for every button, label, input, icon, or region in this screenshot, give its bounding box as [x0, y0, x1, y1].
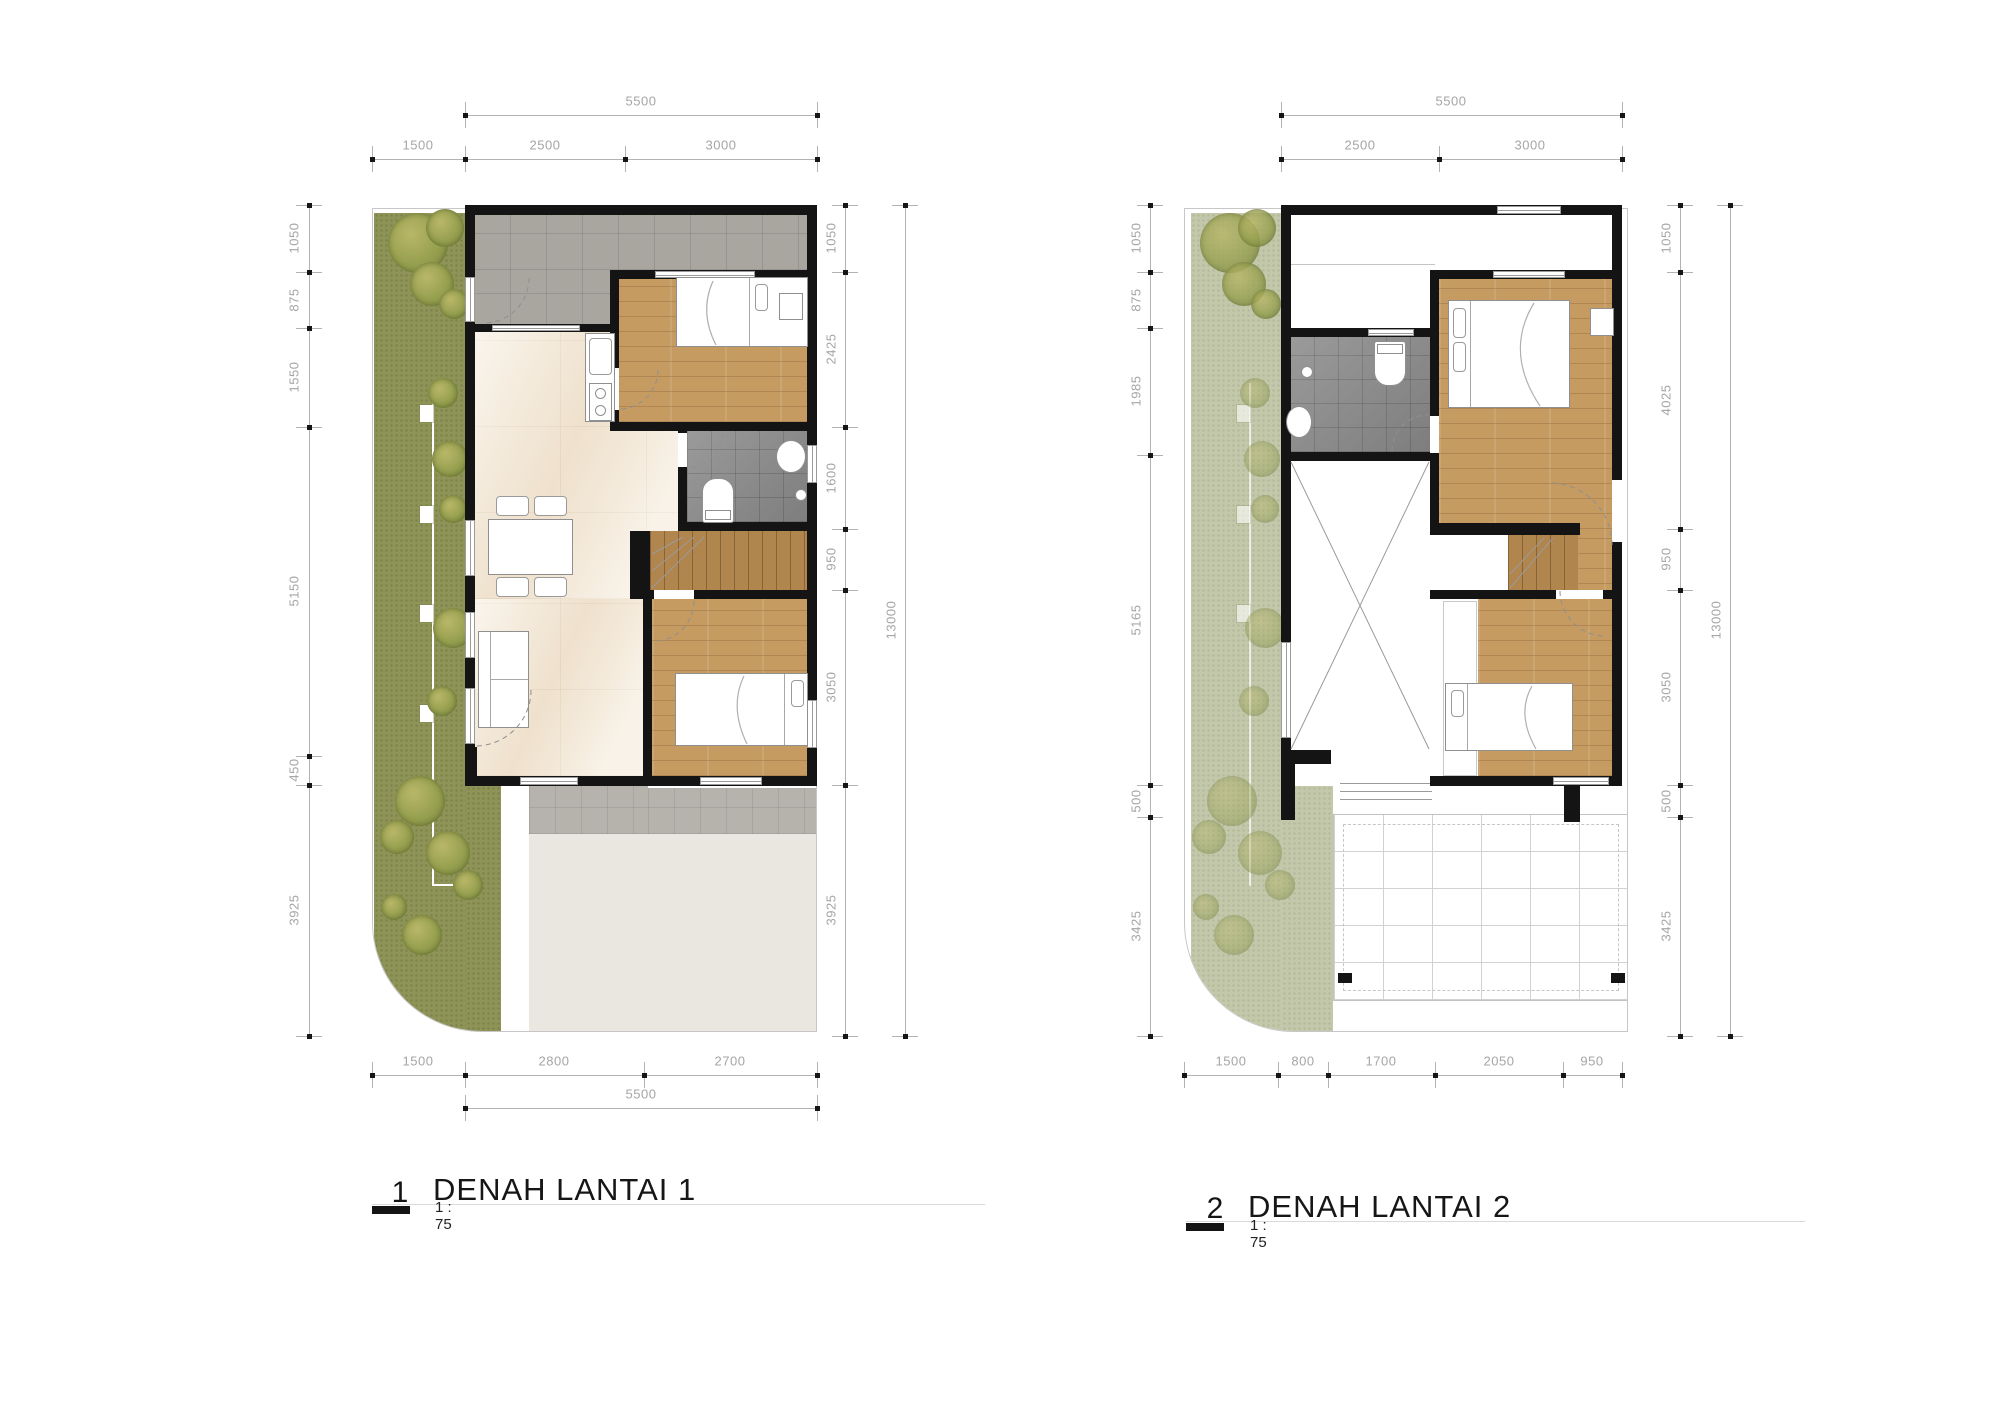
title-bar [372, 1206, 410, 1214]
dim-tick [1137, 1036, 1163, 1037]
dim-line [845, 205, 846, 1036]
dim-label: 500 [1659, 789, 1674, 812]
door-swing-arc [687, 433, 722, 468]
dim-line [1730, 205, 1731, 1036]
dim-tick [832, 529, 858, 530]
dim-label: 1500 [403, 1054, 434, 1069]
dim-tick [644, 1062, 645, 1088]
dim-tick [892, 205, 918, 206]
dim-label: 1985 [1129, 376, 1144, 407]
door-swing-arc [654, 601, 694, 641]
dim-tick [296, 427, 322, 428]
dim-label: 1050 [287, 223, 302, 254]
dim-label: 5500 [626, 1087, 657, 1102]
dim-label: 1050 [1129, 223, 1144, 254]
dim-tick [1667, 529, 1693, 530]
dim-label: 1050 [824, 223, 839, 254]
dim-tick [1667, 590, 1693, 591]
dim-tick [1137, 205, 1163, 206]
dim-label: 1550 [287, 362, 302, 393]
door-swing-arc [484, 278, 529, 323]
dim-tick [1667, 817, 1693, 818]
dim-tick [832, 1036, 858, 1037]
dim-label: 5500 [1436, 94, 1467, 109]
dim-line [465, 115, 817, 116]
plan2-scale: 1 : 75 [1250, 1217, 1267, 1251]
dim-label: 3000 [1515, 138, 1546, 153]
dim-tick [296, 785, 322, 786]
dim-label: 2425 [824, 334, 839, 365]
dim-tick [1281, 146, 1282, 172]
dim-tick [1281, 102, 1282, 128]
dim-tick [296, 756, 322, 757]
blanket-fold [1525, 686, 1536, 749]
dim-tick [1184, 1062, 1185, 1088]
architectural-drawing-sheet: 5500 1500 2500 3000 1050 875 1550 5150 4… [0, 0, 2000, 1414]
dim-tick [1137, 272, 1163, 273]
dim-line [1281, 115, 1622, 116]
stair-winder-lines [1510, 538, 1553, 588]
dim-tick [1137, 328, 1163, 329]
dim-tick [1328, 1062, 1329, 1088]
dim-label: 13000 [1709, 601, 1724, 640]
dim-tick [1435, 1062, 1436, 1088]
dim-label: 1500 [403, 138, 434, 153]
blanket-fold [707, 281, 716, 345]
dim-label: 4025 [1659, 385, 1674, 416]
dim-tick [1137, 817, 1163, 818]
stair-winder-lines [652, 537, 704, 588]
dim-label: 3925 [824, 895, 839, 926]
dim-tick [1667, 205, 1693, 206]
dim-tick [465, 1095, 466, 1121]
dim-label: 800 [1291, 1054, 1314, 1069]
door-swing-arc [619, 370, 658, 409]
dim-label: 13000 [884, 601, 899, 640]
dim-tick [1667, 785, 1693, 786]
dim-tick [296, 328, 322, 329]
dim-tick [465, 146, 466, 172]
plan1-scale: 1 : 75 [435, 1199, 452, 1233]
dim-line [1281, 159, 1622, 160]
void-cross [1291, 462, 1429, 749]
dim-tick [1667, 1036, 1693, 1037]
dim-label: 875 [287, 288, 302, 311]
dim-tick [832, 785, 858, 786]
door-swing-arc [1392, 415, 1428, 451]
dim-label: 5150 [287, 576, 302, 607]
dim-tick [832, 427, 858, 428]
dim-line [905, 205, 906, 1036]
dim-label: 950 [1580, 1054, 1603, 1069]
dim-label: 1050 [1659, 223, 1674, 254]
dim-tick [1439, 146, 1440, 172]
dim-label: 950 [1659, 547, 1674, 570]
dim-label: 2700 [715, 1054, 746, 1069]
door-swing-arc [1560, 591, 1605, 636]
dim-label: 2500 [1345, 138, 1376, 153]
dim-label: 950 [824, 547, 839, 570]
dim-tick [1137, 455, 1163, 456]
title-bar [1186, 1223, 1224, 1231]
dim-tick [1717, 205, 1743, 206]
plan2-title: DENAH LANTAI 2 [1248, 1189, 1511, 1225]
plan1-title: DENAH LANTAI 1 [433, 1172, 696, 1208]
blanket-fold [737, 676, 747, 744]
dim-label: 1600 [824, 463, 839, 494]
dim-tick [1563, 1062, 1564, 1088]
dim-tick [1667, 272, 1693, 273]
dim-label: 3000 [706, 138, 737, 153]
dim-label: 500 [1129, 789, 1144, 812]
door-swing-arc [1550, 483, 1612, 545]
dim-tick [1622, 1062, 1623, 1088]
dim-label: 2500 [530, 138, 561, 153]
dim-tick [1717, 1036, 1743, 1037]
annotation-overlay [0, 0, 2000, 1414]
dim-label: 3925 [287, 895, 302, 926]
dim-tick [372, 146, 373, 172]
dim-tick [817, 146, 818, 172]
dim-label: 3425 [1659, 911, 1674, 942]
dim-tick [817, 102, 818, 128]
dim-tick [296, 272, 322, 273]
dim-tick [465, 102, 466, 128]
dim-label: 1700 [1366, 1054, 1397, 1069]
dim-label: 3050 [1659, 672, 1674, 703]
dim-tick [817, 1095, 818, 1121]
dim-tick [832, 590, 858, 591]
dim-tick [892, 1036, 918, 1037]
dim-line [372, 159, 817, 160]
dim-label: 2050 [1484, 1054, 1515, 1069]
dim-label: 875 [1129, 288, 1144, 311]
dim-line [372, 1075, 817, 1076]
door-swing-arc [475, 690, 531, 746]
dim-tick [296, 205, 322, 206]
dim-tick [1622, 146, 1623, 172]
dim-label: 5500 [626, 94, 657, 109]
dim-tick [625, 146, 626, 172]
dim-label: 2800 [539, 1054, 570, 1069]
dim-tick [1137, 785, 1163, 786]
dim-tick [817, 1062, 818, 1088]
dim-tick [832, 272, 858, 273]
dim-tick [832, 205, 858, 206]
dim-label: 1500 [1216, 1054, 1247, 1069]
dim-tick [1278, 1062, 1279, 1088]
dim-line [465, 1108, 817, 1109]
dim-label: 3425 [1129, 911, 1144, 942]
blanket-fold [1520, 303, 1540, 406]
dim-label: 5165 [1129, 605, 1144, 636]
dim-line [1680, 205, 1681, 1036]
dim-label: 3050 [824, 672, 839, 703]
dim-tick [465, 1062, 466, 1088]
dim-tick [372, 1062, 373, 1088]
dim-tick [1622, 102, 1623, 128]
dim-line [1184, 1075, 1622, 1076]
dim-tick [296, 1036, 322, 1037]
dim-label: 450 [287, 758, 302, 781]
